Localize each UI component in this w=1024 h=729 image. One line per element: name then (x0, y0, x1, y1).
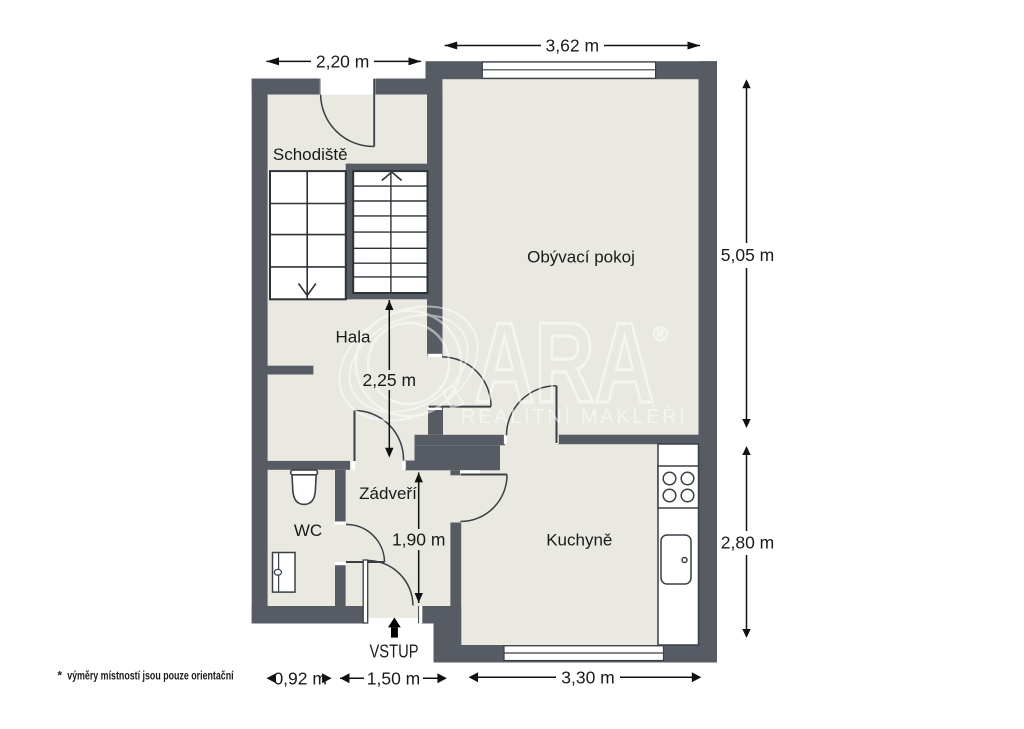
svg-text:Schodiště: Schodiště (273, 145, 348, 164)
svg-text:Zádveří: Zádveří (359, 484, 417, 503)
svg-text:1,90 m: 1,90 m (392, 530, 446, 550)
svg-text:3,30 m: 3,30 m (561, 667, 615, 687)
svg-text:3,62 m: 3,62 m (546, 36, 600, 56)
svg-text:VSTUP: VSTUP (370, 640, 419, 661)
svg-text:5,05 m: 5,05 m (721, 245, 775, 265)
svg-text:2,80 m: 2,80 m (721, 533, 775, 553)
svg-text:WC: WC (294, 521, 322, 540)
svg-text:výměry místností jsou pouze or: výměry místností jsou pouze orientační (67, 669, 234, 683)
svg-text:Obývací pokoj: Obývací pokoj (527, 248, 635, 267)
svg-text:1,50 m: 1,50 m (367, 669, 421, 689)
svg-text:®: ® (653, 324, 668, 346)
svg-text:Hala: Hala (336, 328, 372, 347)
svg-text:REALITNÍ MAKLÉŘI: REALITNÍ MAKLÉŘI (461, 405, 688, 428)
svg-text:2,20 m: 2,20 m (316, 51, 370, 71)
svg-text:Kuchyně: Kuchyně (546, 531, 612, 550)
svg-text:*: * (57, 669, 62, 683)
svg-text:2,25 m: 2,25 m (363, 370, 417, 390)
svg-text:0,92 m: 0,92 m (273, 668, 327, 688)
